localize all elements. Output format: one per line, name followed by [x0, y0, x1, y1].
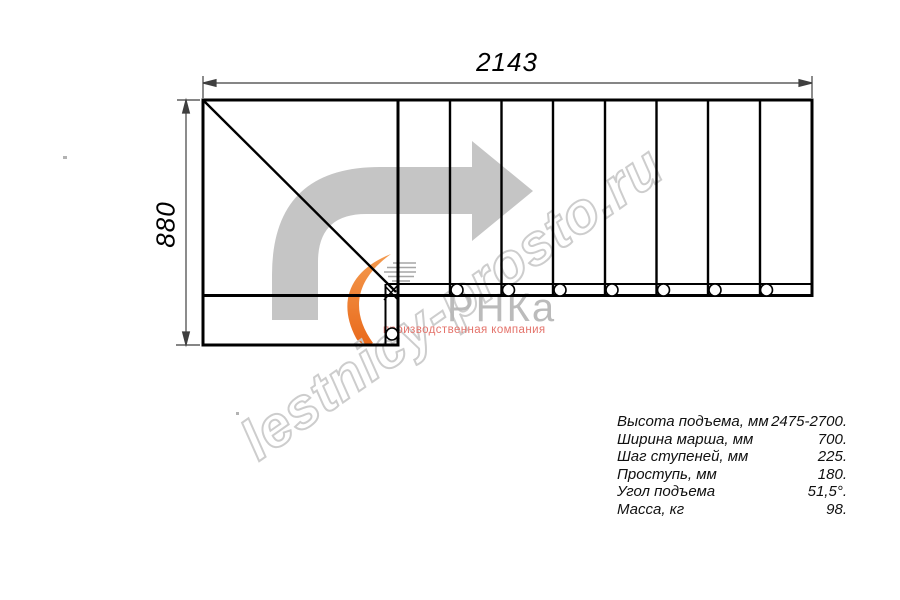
spec-value: 225. — [818, 448, 847, 466]
spec-value: 180. — [818, 466, 847, 484]
spec-row: Высота подъема, мм 2475-2700. — [617, 413, 847, 431]
spec-row: Угол подъема 51,5°. — [617, 483, 847, 501]
spec-table: Высота подъема, мм 2475-2700. Ширина мар… — [617, 413, 847, 519]
height-dimension-label: 880 — [151, 175, 182, 275]
dimension-lines — [176, 76, 812, 345]
spec-label: Шаг ступеней, мм — [617, 448, 748, 466]
spec-label: Высота подъема, мм — [617, 413, 769, 431]
spec-row: Ширина марша, мм 700. — [617, 431, 847, 449]
stair-drawing-page: lestnicy-prosto.ru РНКа производственная… — [0, 0, 900, 600]
spec-row: Шаг ступеней, мм 225. — [617, 448, 847, 466]
spec-value: 700. — [818, 431, 847, 449]
scan-artifact-dot — [236, 412, 239, 415]
spec-label: Проступь, мм — [617, 466, 717, 484]
spec-value: 98. — [826, 501, 847, 519]
spec-row: Масса, кг 98. — [617, 501, 847, 519]
spec-label: Ширина марша, мм — [617, 431, 753, 449]
width-dimension-label: 2143 — [457, 47, 557, 78]
spec-value: 2475-2700. — [771, 413, 847, 431]
spec-label: Масса, кг — [617, 501, 684, 519]
bolt-circles — [386, 284, 773, 340]
spec-value: 51,5°. — [808, 483, 847, 501]
spec-label: Угол подъема — [617, 483, 715, 501]
scan-artifact-dot — [63, 156, 67, 159]
spec-row: Проступь, мм 180. — [617, 466, 847, 484]
